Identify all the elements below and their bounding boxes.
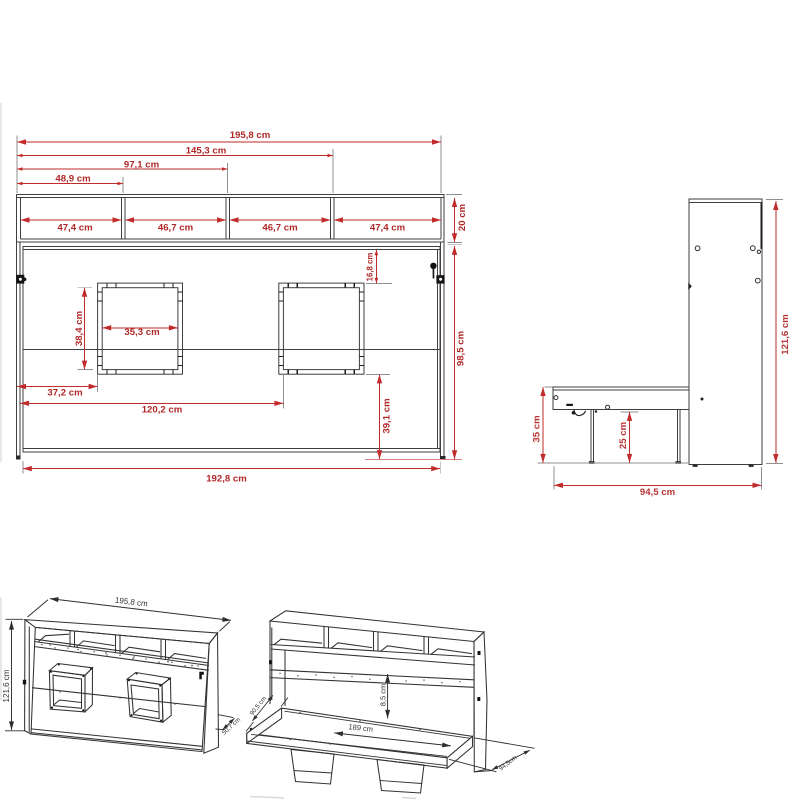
svg-text:120,2 cm: 120,2 cm [142, 405, 183, 416]
svg-text:145,3 cm: 145,3 cm [186, 146, 227, 157]
svg-text:98,5 cm: 98,5 cm [456, 331, 467, 366]
svg-text:97,1 cm: 97,1 cm [124, 160, 159, 171]
svg-text:121,6 cm: 121,6 cm [2, 669, 11, 702]
svg-text:8,5 cm: 8,5 cm [379, 684, 388, 707]
svg-text:35 cm: 35 cm [532, 415, 543, 442]
svg-text:20 cm: 20 cm [457, 204, 468, 231]
svg-text:46,7 cm: 46,7 cm [262, 223, 297, 234]
svg-text:48,9 cm: 48,9 cm [55, 174, 90, 185]
svg-text:195,8 cm: 195,8 cm [230, 130, 271, 141]
svg-text:16,8 cm: 16,8 cm [366, 253, 375, 282]
svg-text:38,4 cm: 38,4 cm [74, 311, 85, 346]
svg-text:39,1 cm: 39,1 cm [382, 398, 393, 433]
svg-text:25 cm: 25 cm [618, 422, 629, 449]
svg-text:47,4 cm: 47,4 cm [370, 223, 405, 234]
svg-text:192,8 cm: 192,8 cm [206, 474, 247, 485]
svg-text:37,2 cm: 37,2 cm [47, 388, 82, 399]
svg-text:47,4 cm: 47,4 cm [57, 223, 92, 234]
svg-text:46,7 cm: 46,7 cm [158, 223, 193, 234]
svg-text:121,6 cm: 121,6 cm [780, 314, 791, 355]
svg-text:35,3 cm: 35,3 cm [124, 327, 159, 338]
svg-text:94,5 cm: 94,5 cm [640, 487, 675, 498]
